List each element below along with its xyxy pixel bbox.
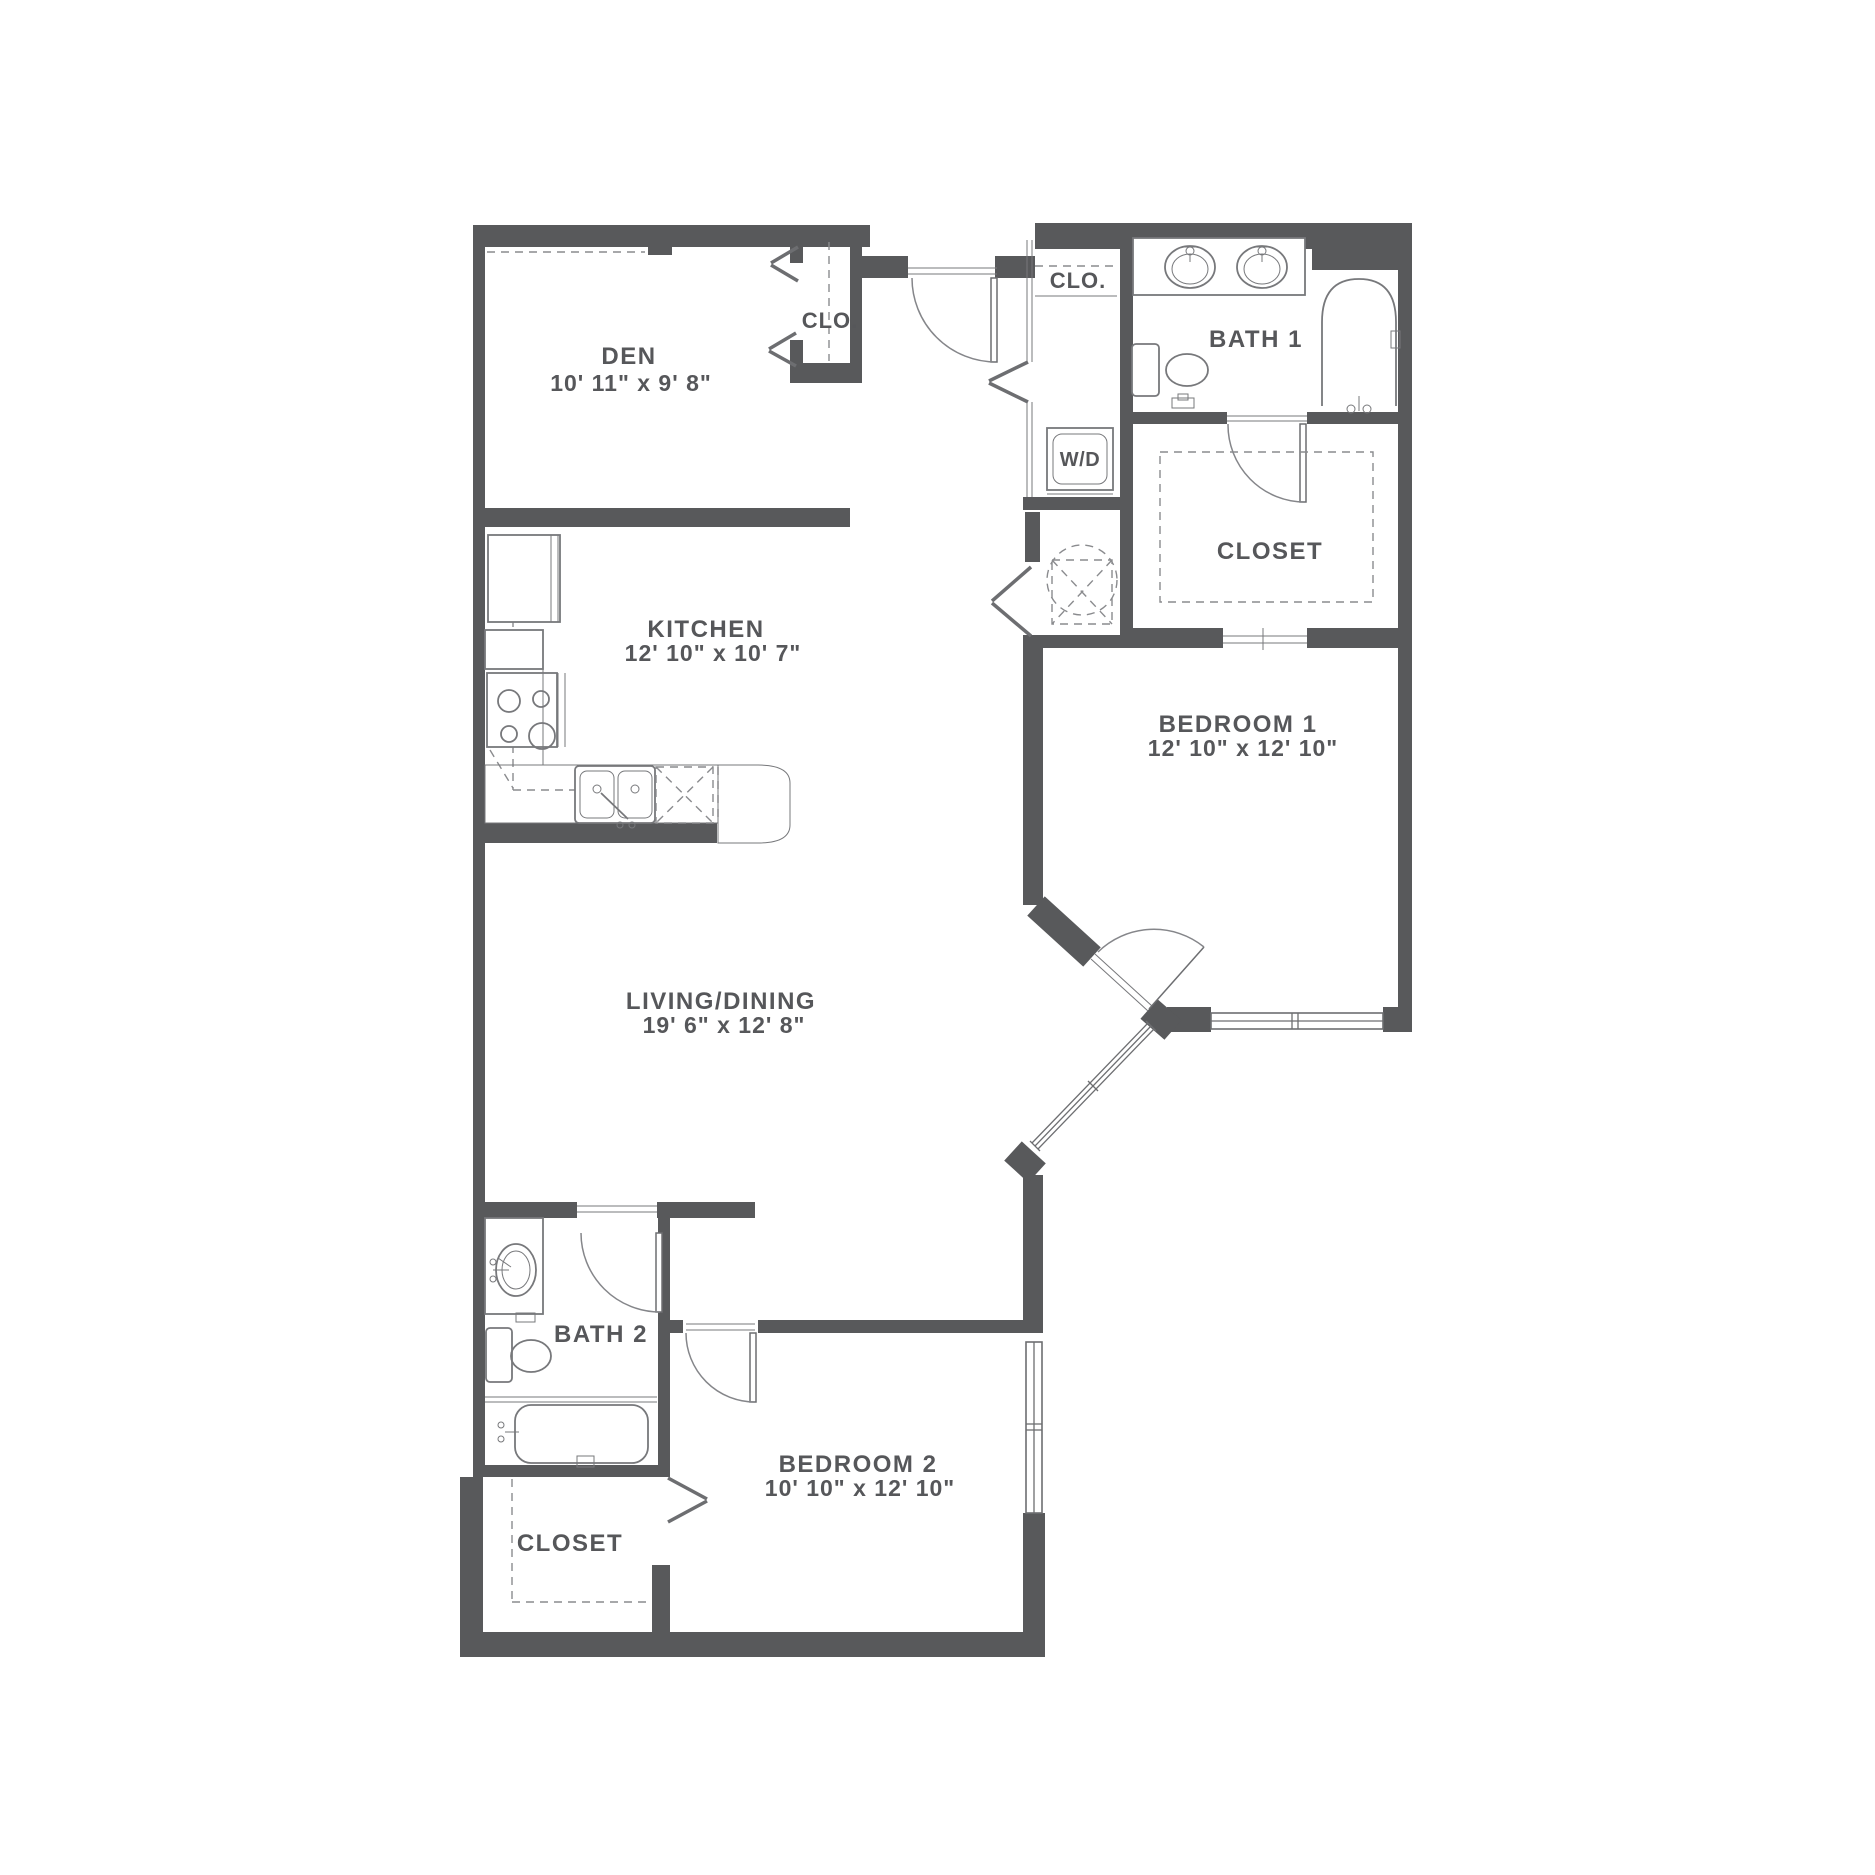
- entry-door-icon: [908, 268, 997, 362]
- den-label: DEN: [601, 343, 656, 370]
- bath1-vanity-icon: [1133, 238, 1305, 295]
- bedroom2-door-icon: [686, 1324, 756, 1402]
- bedroom1-label: BEDROOM 1: [1159, 711, 1318, 738]
- stove-icon: [487, 673, 565, 749]
- refrigerator-icon: [488, 535, 560, 622]
- closet-opening: [1223, 628, 1307, 650]
- entry-closet-label: CLO.: [1050, 268, 1107, 293]
- bath1-closet-label: CLOSET: [1217, 538, 1323, 565]
- bath2-label: BATH 2: [554, 1321, 648, 1348]
- den-closet-label: CLO.: [802, 308, 859, 333]
- bedroom2-dims: 10' 10" x 12' 10": [765, 1475, 955, 1501]
- kitchen-dims: 12' 10" x 10' 7": [625, 640, 802, 666]
- walls: [460, 223, 1412, 1657]
- bedroom2-label: BEDROOM 2: [779, 1451, 938, 1478]
- dashed-details: [487, 242, 1373, 1602]
- floor-plan-page: DEN 10' 11" x 9' 8" CLO. CLO. BATH 1 W/D…: [0, 0, 1875, 1875]
- living-dims: 19' 6" x 12' 8": [643, 1012, 806, 1038]
- bath2-tub-icon: [485, 1397, 657, 1467]
- kitchen-fixtures: [485, 535, 790, 843]
- windows: [1026, 1013, 1383, 1513]
- den-dims: 10' 11" x 9' 8": [550, 370, 712, 396]
- bedroom2-window-icon: [1026, 1342, 1042, 1513]
- bedroom1-door-icon: [1091, 929, 1204, 1011]
- water-heater-bifold-icon: [992, 567, 1031, 636]
- bedroom2-closet-bifold-icon: [668, 1478, 707, 1522]
- bath2-door-icon: [577, 1206, 662, 1312]
- bath2-vanity-icon: [485, 1218, 543, 1314]
- labels: DEN 10' 11" x 9' 8" CLO. CLO. BATH 1 W/D…: [517, 268, 1338, 1557]
- dishwasher-icon: [656, 767, 713, 823]
- living-label: LIVING/DINING: [626, 988, 816, 1015]
- bath1-toilet-icon: [1132, 344, 1208, 408]
- bath1-closet-door-icon: [1227, 416, 1307, 502]
- bath2-toilet-icon: [486, 1328, 551, 1382]
- kitchen-counter-icon: [485, 630, 543, 669]
- living-bay-window-icon: [1030, 1021, 1156, 1151]
- kitchen-sink-icon: [575, 766, 655, 828]
- washer-dryer-label: W/D: [1060, 449, 1100, 471]
- entry-closet-bifold-icon: [989, 362, 1028, 402]
- bath1-tub-icon: [1322, 279, 1400, 413]
- bath1-label: BATH 1: [1209, 326, 1303, 353]
- bedroom1-window-icon: [1211, 1013, 1383, 1029]
- water-heater-icon: [1047, 545, 1117, 624]
- bedroom1-dims: 12' 10" x 12' 10": [1148, 735, 1338, 761]
- floor-plan-drawing: DEN 10' 11" x 9' 8" CLO. CLO. BATH 1 W/D…: [0, 0, 1875, 1875]
- bedroom2-closet-label: CLOSET: [517, 1530, 623, 1557]
- kitchen-label: KITCHEN: [647, 616, 764, 643]
- laundry-doors-icon: [1027, 240, 1032, 497]
